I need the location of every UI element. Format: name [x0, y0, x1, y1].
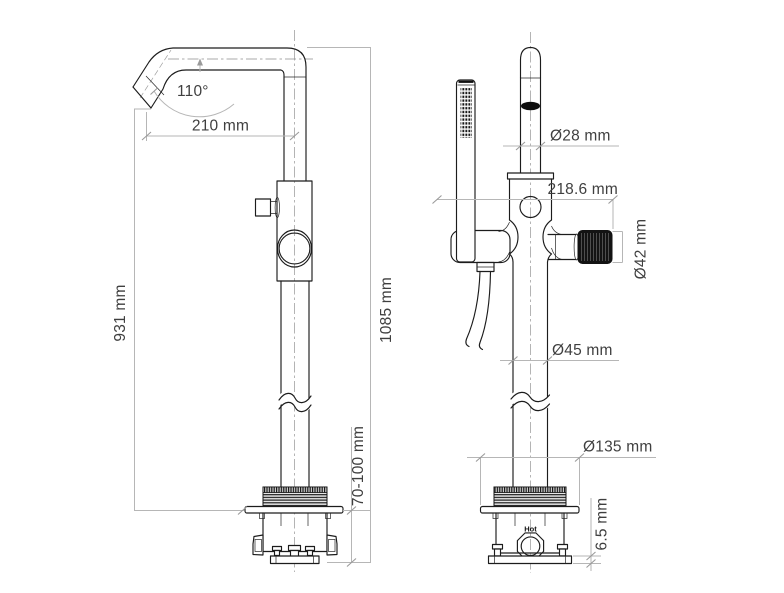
- faucet-technical-drawing: Hot 110° 210 mm 931 mm 1085 mm 7: [0, 0, 784, 593]
- spout-tip-face: [133, 87, 151, 108]
- spout-inner-edge: [151, 70, 284, 108]
- spout-outer-edge: [133, 48, 306, 87]
- dimension-annotations: 110° 210 mm 931 mm 1085 mm 70-100 mm Ø28…: [112, 48, 656, 572]
- valve-notch-left: [260, 513, 265, 519]
- diverter-knob-stem: [271, 202, 278, 214]
- temperature-knob: [578, 231, 612, 264]
- spout-height-label: 931 mm: [112, 284, 129, 341]
- floor-flange-side: [481, 507, 580, 514]
- shower-hose-front: [466, 272, 480, 347]
- plate-thickness-label: 6.5 mm: [594, 498, 611, 551]
- diverter-knob: [256, 199, 271, 216]
- valve-notch-right: [326, 513, 331, 519]
- column-dia-label: Ø45 mm: [552, 342, 613, 359]
- flange-dia-label: Ø135 mm: [583, 439, 652, 456]
- body-top-flange: [508, 173, 554, 179]
- knob-neck: [548, 235, 576, 260]
- technical-drawing-page: Hot 110° 210 mm 931 mm 1085 mm 7: [0, 0, 784, 593]
- front-view: [133, 30, 343, 572]
- knob-dia-label: Ø42 mm: [633, 219, 650, 280]
- shower-hose-back: [479, 272, 490, 350]
- neck-fillets: [552, 226, 563, 260]
- hot-port-label: Hot: [524, 525, 537, 534]
- angle-tick: [151, 88, 158, 95]
- anchor-bolts: [273, 546, 315, 557]
- riser-column: [281, 281, 309, 487]
- spout-height-dimension-line: [135, 109, 245, 511]
- knob-dia-bracket: [613, 232, 623, 263]
- base-plate: [271, 556, 320, 564]
- spray-nozzle-grid: [461, 88, 473, 138]
- total-depth-label: 218.6 mm: [548, 181, 619, 198]
- side-view: Hot: [451, 32, 612, 573]
- mounting-collar-knurl-side: [494, 487, 566, 493]
- angle-arrowhead: [197, 59, 203, 66]
- angle-label: 110°: [177, 83, 209, 100]
- floor-flange: [245, 507, 343, 514]
- waist-right: [543, 220, 552, 262]
- reach-label: 210 mm: [192, 118, 249, 135]
- base-plate-side: [489, 556, 572, 564]
- anchor-bolts-side: [493, 545, 568, 557]
- spout-tube: [284, 78, 306, 181]
- spout-dia-label: Ø28 mm: [550, 128, 611, 145]
- nozzle-axis-centerline: [140, 50, 171, 98]
- spout-outlet-opening: [521, 102, 540, 111]
- install-depth-label: 70-100 mm: [350, 426, 367, 506]
- total-height-label: 1085 mm: [378, 277, 395, 343]
- mounting-collar-knurl: [263, 487, 327, 493]
- waist-left: [510, 220, 519, 262]
